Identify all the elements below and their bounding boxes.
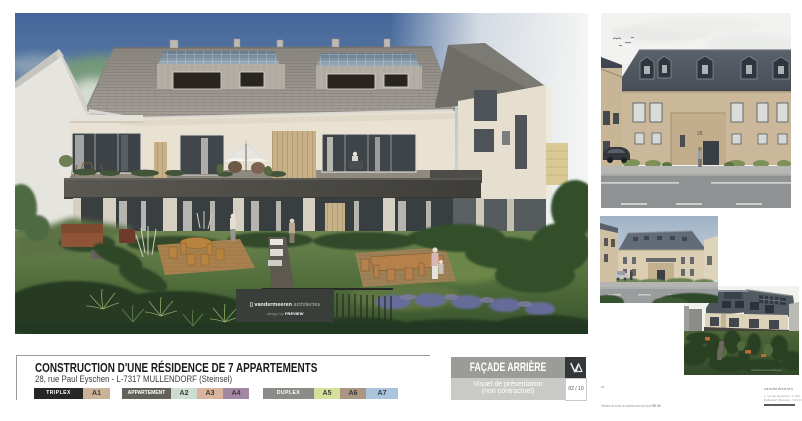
svg-text:28: 28 xyxy=(697,131,703,137)
svg-text:vandermeeren architectes: vandermeeren architectes xyxy=(751,368,782,372)
svg-text:▯ vandermeeren architectes: ▯ vandermeeren architectes xyxy=(250,302,321,308)
svg-text:design by PREVIEW: design by PREVIEW xyxy=(267,311,305,316)
